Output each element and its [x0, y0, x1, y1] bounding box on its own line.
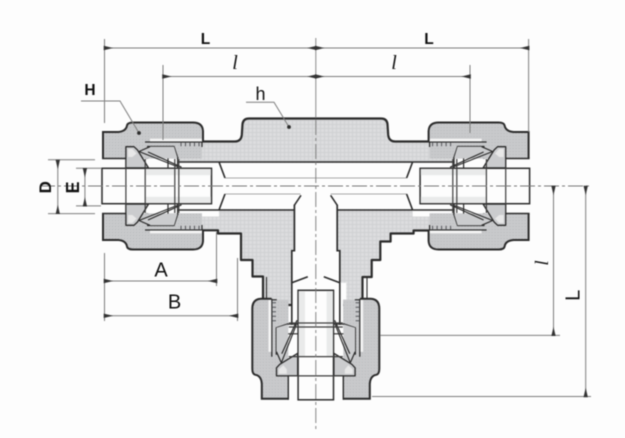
svg-text:H: H — [84, 82, 95, 99]
svg-text:l: l — [232, 52, 238, 74]
svg-text:D: D — [36, 181, 55, 193]
svg-text:L: L — [424, 31, 433, 48]
svg-text:L: L — [563, 290, 585, 301]
svg-text:L: L — [201, 31, 210, 48]
svg-text:E: E — [63, 181, 83, 193]
svg-text:l: l — [532, 260, 553, 265]
svg-text:h: h — [255, 84, 265, 104]
svg-text:A: A — [154, 260, 168, 282]
svg-text:B: B — [168, 292, 181, 314]
svg-text:l: l — [391, 52, 397, 74]
